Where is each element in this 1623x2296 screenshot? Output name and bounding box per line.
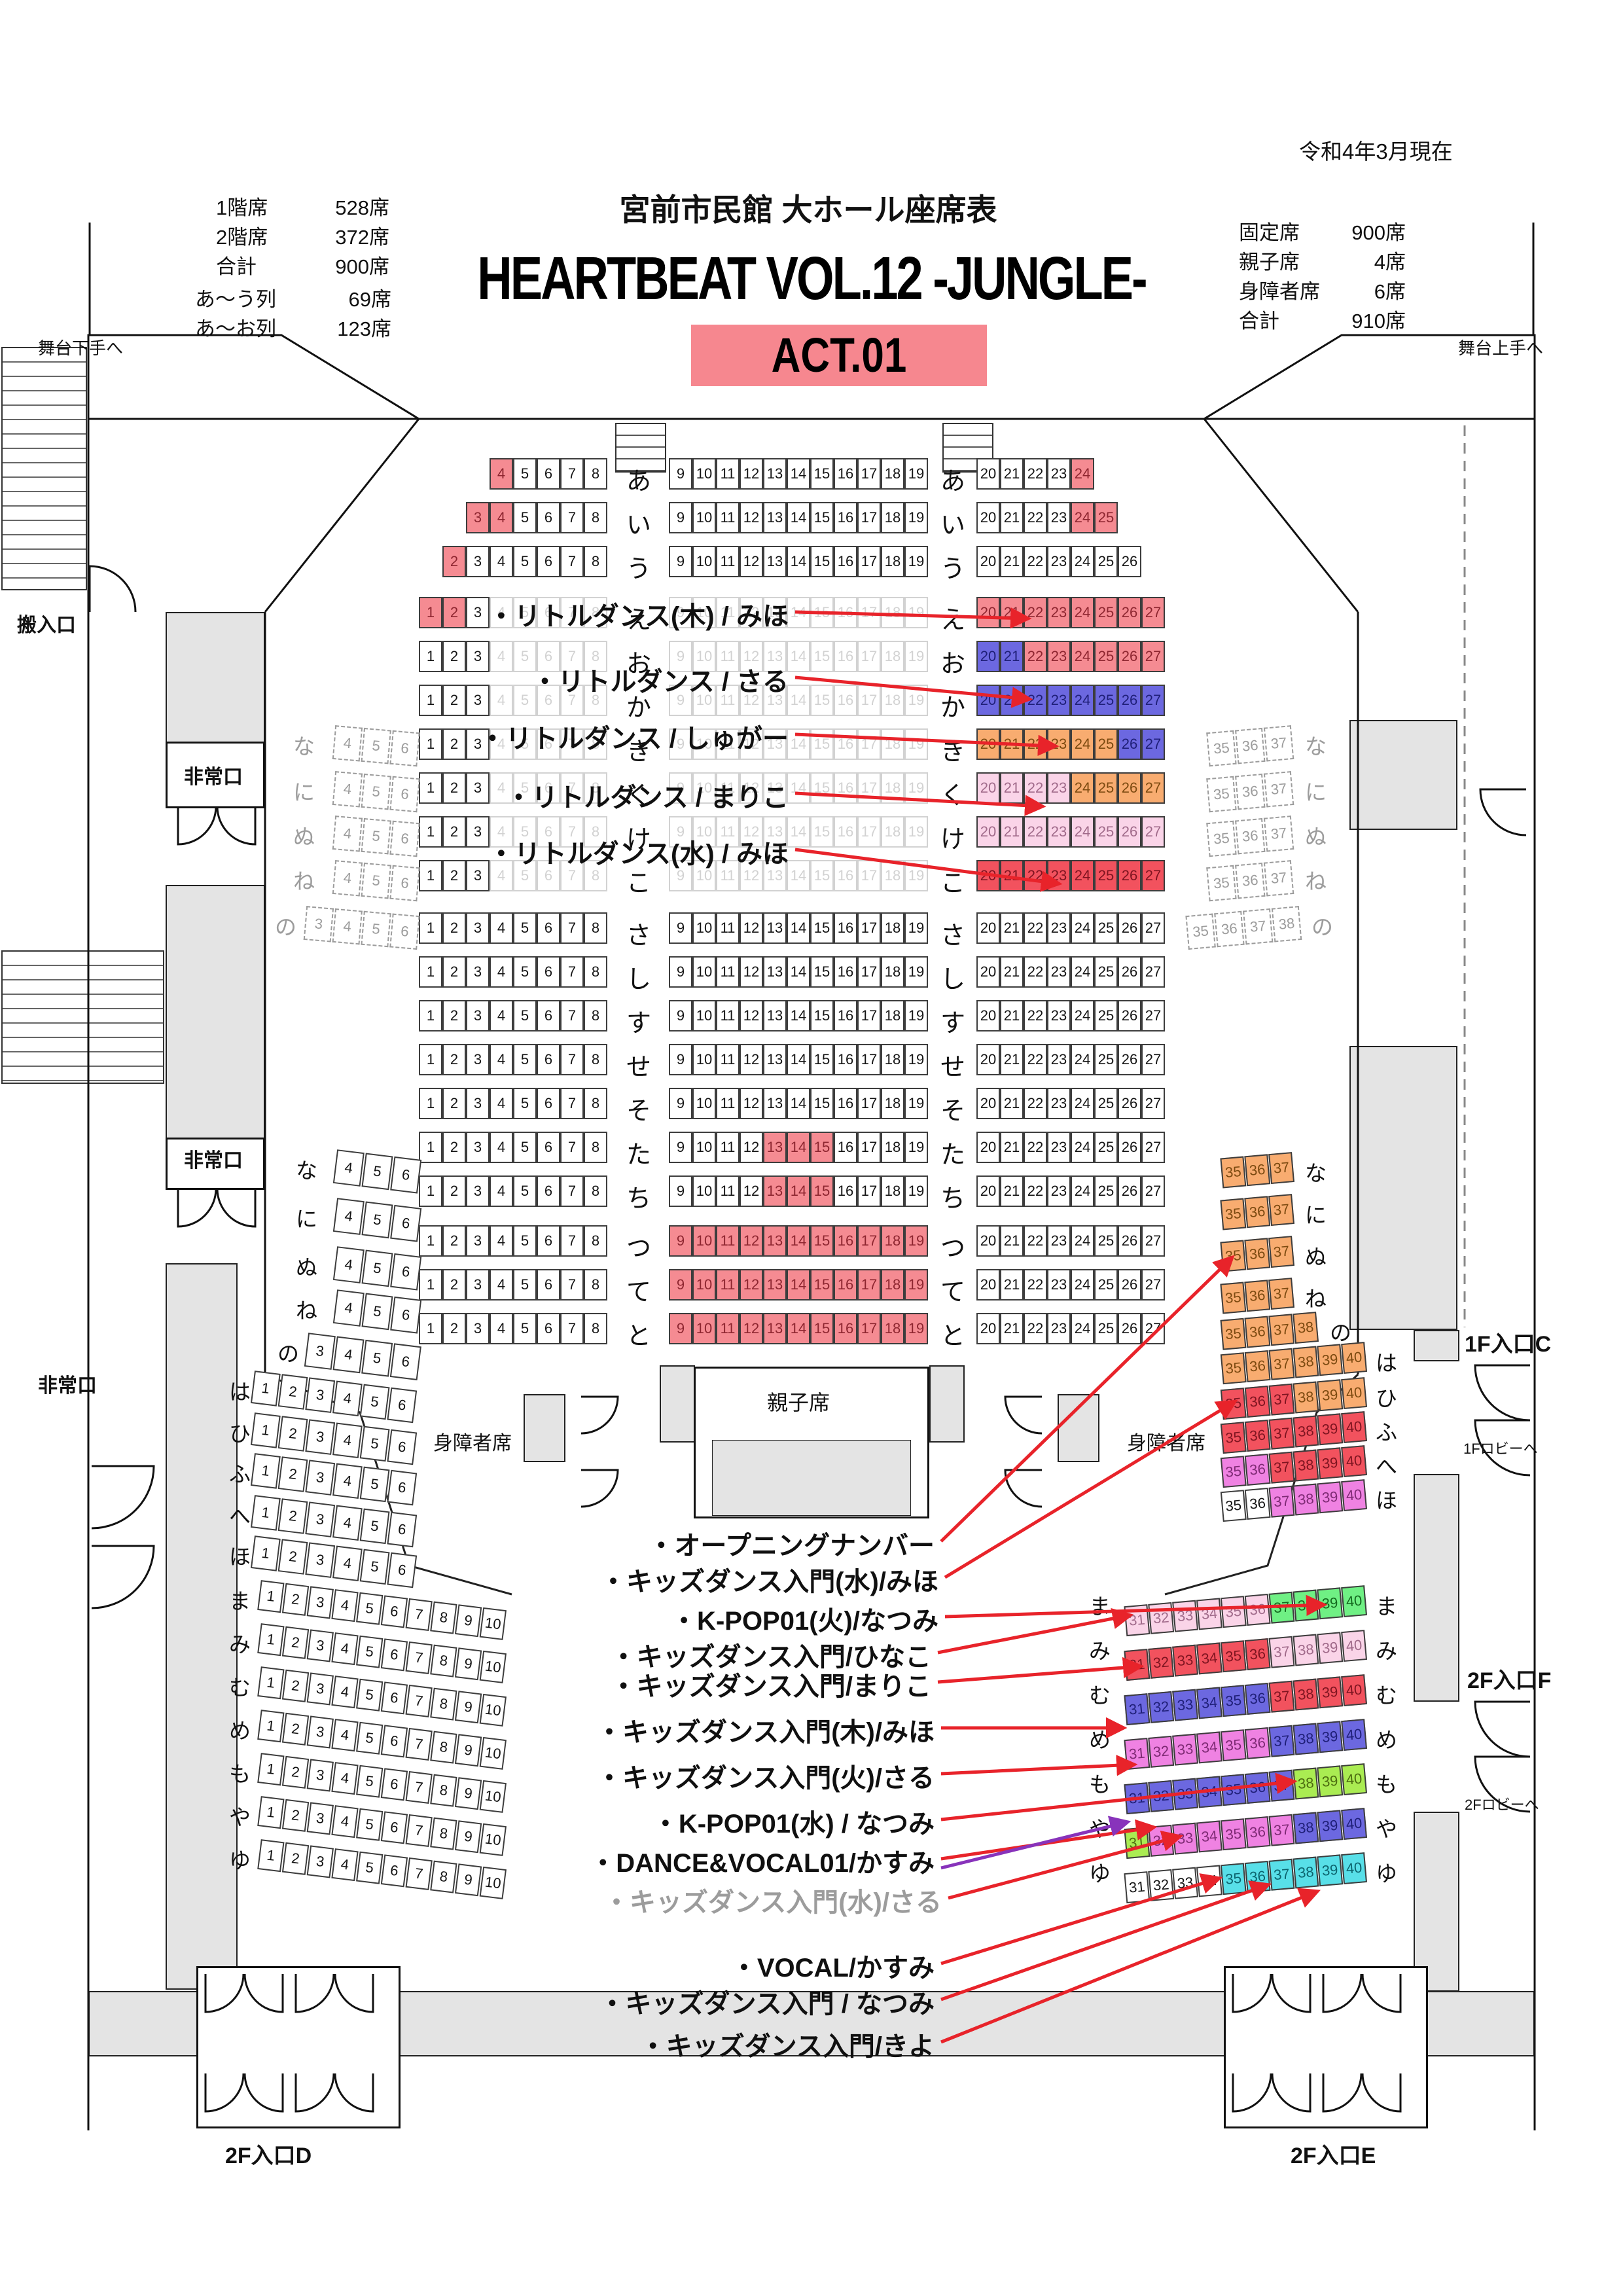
- annotation-arrow-purple: [941, 1822, 1127, 1868]
- annotation-arrow: [795, 677, 1029, 699]
- annotation-arrow: [938, 1666, 1140, 1682]
- annotation-arrow: [941, 1892, 1317, 2042]
- annotation-arrow: [945, 1605, 1323, 1617]
- annotation-arrow: [938, 1615, 1130, 1653]
- annotation-arrow: [795, 734, 1055, 746]
- annotation-arrow: [795, 850, 1058, 884]
- annotation-arrow: [941, 1258, 1232, 1541]
- annotation-arrow: [795, 612, 1027, 619]
- annotation-arrows: [0, 0, 1623, 2296]
- annotation-arrow: [941, 1765, 1133, 1774]
- annotation-arrow: [795, 793, 1042, 806]
- annotation-arrow: [948, 1837, 1179, 1898]
- annotation-arrow: [941, 1885, 1268, 2000]
- annotation-arrow: [945, 1402, 1234, 1577]
- annotation-arrow: [941, 1782, 1293, 1820]
- seating-chart-page: 宮前市民館 大ホール座席表 HEARTBEAT VOL.12 -JUNGLE- …: [0, 0, 1623, 2296]
